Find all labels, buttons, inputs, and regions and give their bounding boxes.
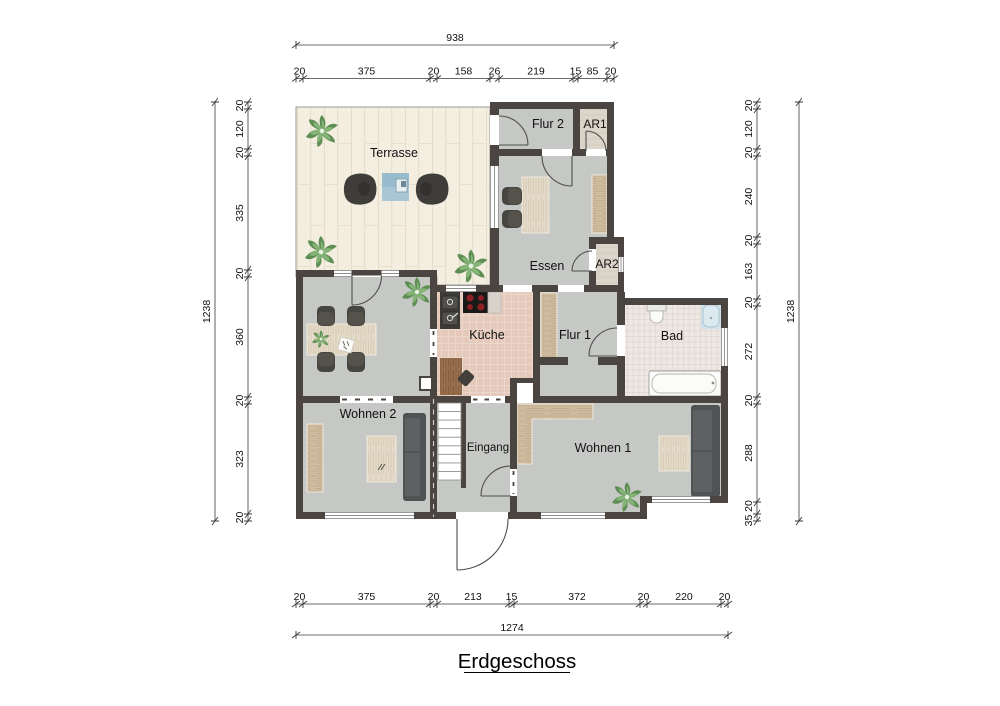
svg-text:Wohnen 1: Wohnen 1 xyxy=(575,441,632,455)
svg-text:20: 20 xyxy=(234,395,246,407)
svg-text:Eingang: Eingang xyxy=(467,442,509,454)
svg-text:20: 20 xyxy=(605,66,617,78)
svg-text:219: 219 xyxy=(527,66,545,78)
svg-text:AR1: AR1 xyxy=(583,117,607,131)
svg-text:1238: 1238 xyxy=(201,300,213,324)
svg-text:20: 20 xyxy=(234,512,246,524)
svg-text:375: 375 xyxy=(358,66,376,78)
svg-text:120: 120 xyxy=(743,120,755,138)
svg-text:272: 272 xyxy=(743,343,755,361)
svg-text:240: 240 xyxy=(743,188,755,206)
svg-text:372: 372 xyxy=(568,591,586,603)
svg-text:Küche: Küche xyxy=(469,328,504,342)
svg-text:120: 120 xyxy=(234,120,246,138)
svg-text:20: 20 xyxy=(294,66,306,78)
svg-text:375: 375 xyxy=(358,591,376,603)
svg-text:20: 20 xyxy=(428,591,440,603)
svg-text:213: 213 xyxy=(464,591,482,603)
svg-text:Erdgeschoss: Erdgeschoss xyxy=(458,650,577,673)
svg-text:Terrasse: Terrasse xyxy=(370,146,418,160)
svg-text:20: 20 xyxy=(743,500,755,512)
svg-text:20: 20 xyxy=(638,591,650,603)
svg-text:20: 20 xyxy=(743,235,755,247)
svg-text:360: 360 xyxy=(234,328,246,346)
svg-text:938: 938 xyxy=(446,32,464,44)
svg-text:20: 20 xyxy=(234,147,246,159)
svg-text:20: 20 xyxy=(743,100,755,112)
svg-text:20: 20 xyxy=(743,147,755,159)
svg-text:Bad: Bad xyxy=(661,329,683,343)
svg-text:85: 85 xyxy=(587,66,599,78)
svg-text:Essen: Essen xyxy=(530,259,565,273)
svg-text:20: 20 xyxy=(743,297,755,309)
svg-text:20: 20 xyxy=(743,395,755,407)
svg-text:288: 288 xyxy=(743,444,755,462)
svg-text:335: 335 xyxy=(234,204,246,222)
svg-text:1274: 1274 xyxy=(500,622,524,634)
svg-text:20: 20 xyxy=(294,591,306,603)
svg-text:323: 323 xyxy=(234,450,246,468)
svg-text:20: 20 xyxy=(719,591,731,603)
svg-text:35: 35 xyxy=(743,515,755,527)
svg-text:15: 15 xyxy=(570,66,582,78)
svg-text:20: 20 xyxy=(234,100,246,112)
svg-text:Flur 1: Flur 1 xyxy=(559,328,591,342)
svg-text:20: 20 xyxy=(428,66,440,78)
svg-text:1238: 1238 xyxy=(785,300,797,324)
svg-text:Flur 2: Flur 2 xyxy=(532,117,564,131)
svg-text:20: 20 xyxy=(234,268,246,280)
svg-text:163: 163 xyxy=(743,263,755,281)
svg-text:Wohnen 2: Wohnen 2 xyxy=(340,407,397,421)
svg-text:AR2: AR2 xyxy=(595,257,619,271)
svg-text:220: 220 xyxy=(675,591,693,603)
svg-text:26: 26 xyxy=(489,66,501,78)
svg-text:15: 15 xyxy=(506,591,518,603)
svg-text:158: 158 xyxy=(455,66,473,78)
